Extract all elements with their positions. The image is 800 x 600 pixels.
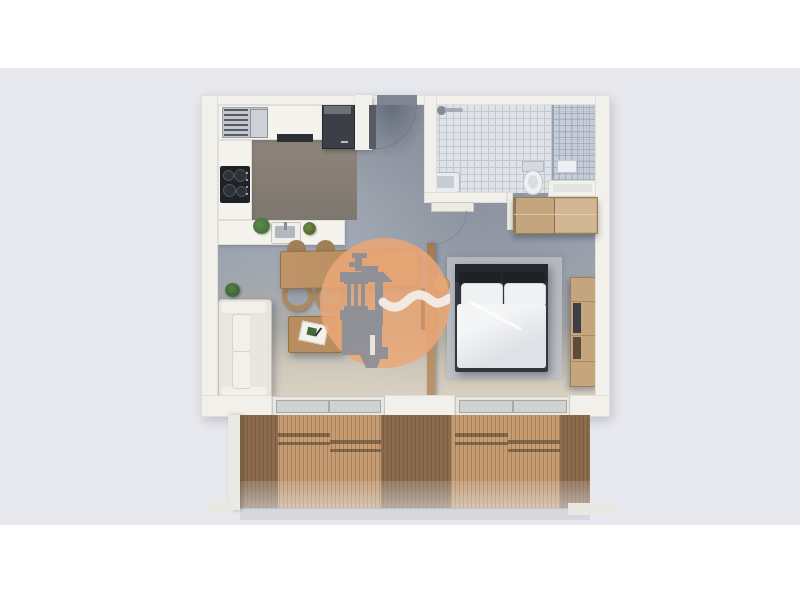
screenshot-root	[0, 0, 800, 600]
vented-appliance	[222, 107, 268, 138]
balcony-corner-left	[208, 500, 233, 513]
deck-frame-shadow	[508, 449, 560, 452]
cooktop-knob	[246, 193, 248, 195]
wall-right	[595, 95, 610, 417]
wall-bottom-right	[568, 395, 610, 417]
burner-icon	[223, 170, 234, 181]
shower-shelf	[557, 160, 577, 173]
shower-tray	[548, 180, 597, 197]
sliding-door-glass	[276, 400, 329, 413]
logo-white-slit	[370, 335, 375, 355]
sliding-door-glass	[513, 400, 567, 413]
media-unit-divider	[571, 301, 597, 302]
duvet-fold-highlight	[468, 300, 522, 331]
bathroom-washbasin	[433, 172, 460, 193]
cooktop-knob	[246, 179, 248, 181]
shower-arm	[445, 108, 463, 112]
sofa-seat	[250, 351, 267, 387]
counter-plant-icon	[303, 222, 316, 235]
cooktop	[220, 166, 250, 203]
wardrobe	[513, 197, 598, 234]
deck-frame-shadow	[455, 442, 508, 445]
wardrobe-edge-shadow	[514, 198, 516, 233]
deck-frame-shadow	[330, 440, 381, 444]
media-unit-shelf-wood	[573, 337, 581, 359]
double-bed	[455, 264, 548, 372]
sofa-backrest	[221, 313, 232, 387]
balcony-corner-right	[568, 503, 616, 515]
toilet-bowl	[523, 170, 543, 195]
sliding-door-living	[272, 396, 385, 417]
sliding-door-glass	[329, 400, 381, 413]
deck-frame-shadow	[278, 442, 330, 445]
real-estate-watermark	[320, 238, 450, 368]
glass-railing-edge	[240, 508, 590, 520]
bathroom-wall-left	[424, 95, 437, 195]
counter-plant-icon	[253, 218, 270, 234]
appliance-vent-grill	[224, 109, 248, 136]
washbasin-bowl	[437, 176, 454, 188]
sofa-cushion	[232, 351, 251, 389]
balcony-wall-left	[228, 415, 240, 510]
faucet-icon	[284, 222, 287, 230]
wall-left	[201, 95, 218, 417]
shower-glass-enclosure	[552, 100, 599, 186]
sliding-door-glass	[459, 400, 513, 413]
cooktop-knob	[246, 172, 248, 174]
sofa-armrest	[221, 302, 267, 313]
shower-tray-inner	[553, 184, 592, 192]
floor-plant-icon	[225, 283, 240, 297]
fridge-top-face	[324, 106, 351, 114]
wardrobe-light-door	[555, 199, 596, 232]
toilet-seat	[528, 175, 538, 189]
wall-bottom-left	[201, 395, 272, 417]
kitchen-floor	[252, 140, 357, 220]
deck-frame-shadow	[278, 433, 330, 437]
bed-duvet	[457, 304, 546, 368]
burner-icon	[223, 184, 236, 197]
fridge-handle	[341, 141, 348, 143]
wall-bottom-center-stub	[383, 395, 455, 417]
deck-frame-shadow	[330, 449, 381, 452]
media-unit-shelf-dark	[573, 303, 581, 333]
media-unit-divider	[571, 335, 597, 336]
sofa	[218, 299, 272, 401]
sofa-cushion	[232, 314, 251, 352]
deck-frame-shadow	[508, 440, 560, 444]
fridge	[322, 104, 355, 149]
cooktop-knob	[246, 186, 248, 188]
sofa-seat	[250, 314, 267, 350]
deck-frame-shadow	[455, 433, 508, 437]
sliding-door-bedroom	[455, 396, 570, 417]
appliance-door	[250, 109, 268, 138]
media-unit	[570, 277, 598, 387]
entrance-opening	[377, 95, 417, 105]
media-unit-divider	[571, 361, 597, 362]
glass-railing-haze	[240, 481, 590, 509]
counter-hob-strip	[277, 134, 313, 142]
